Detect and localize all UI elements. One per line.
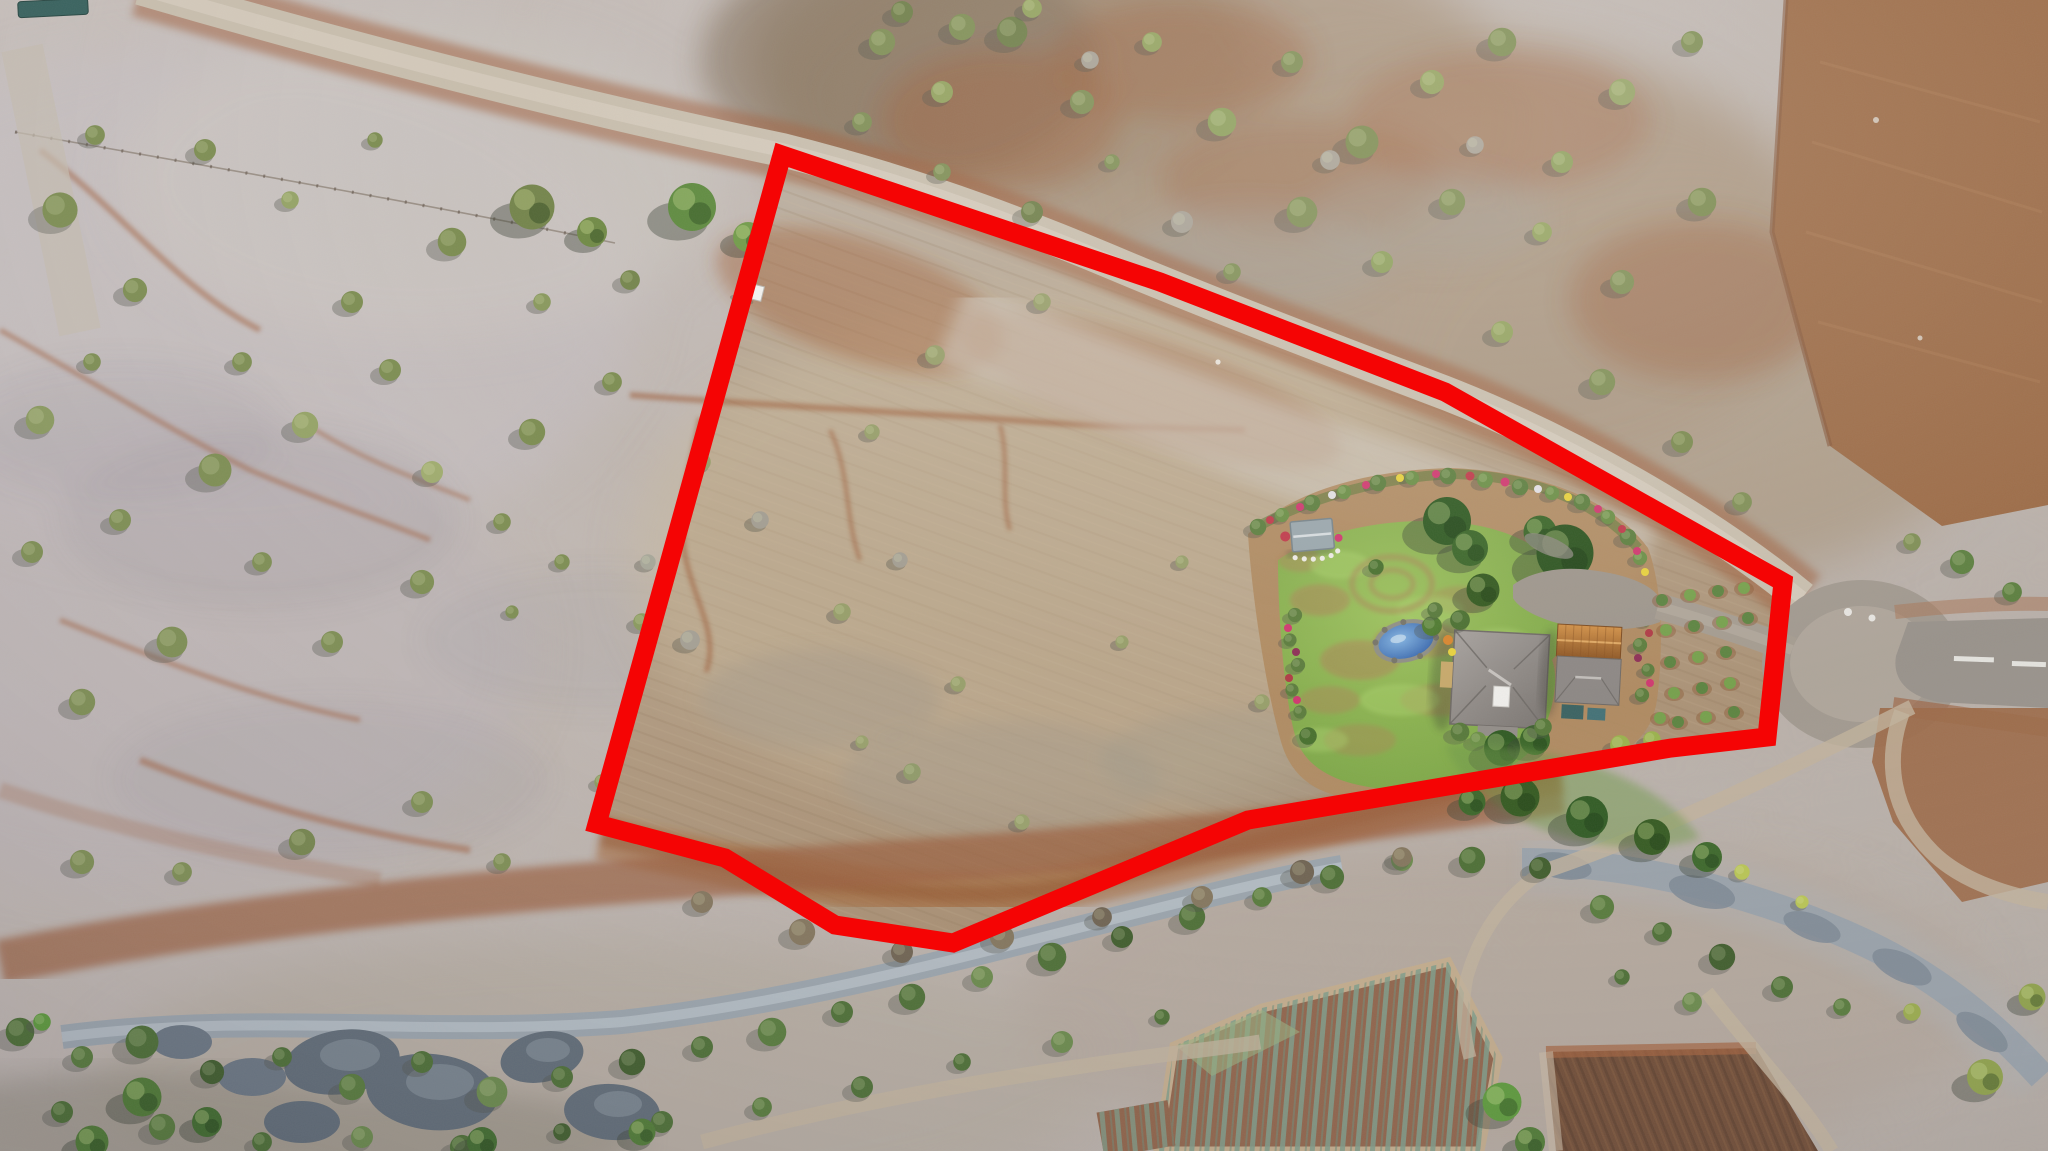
photo-grain [0, 0, 2048, 1151]
screenshot-root [0, 0, 2048, 1151]
aerial-photo [0, 0, 2048, 1151]
